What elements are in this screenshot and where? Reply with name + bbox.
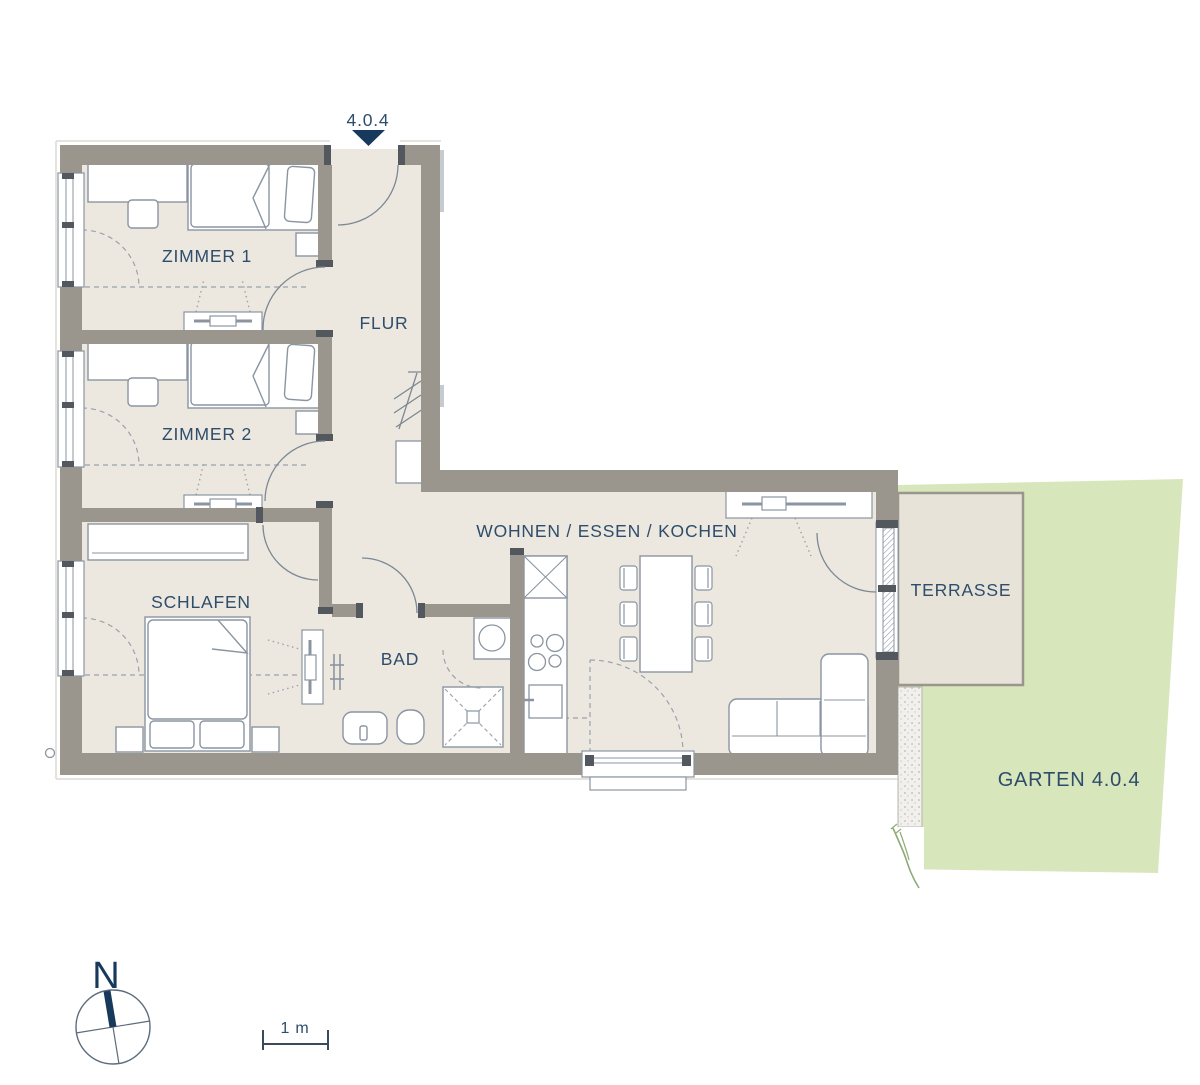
window-schlafen: [58, 561, 84, 676]
terrace-sliding-door: [876, 520, 898, 660]
flur-closet: [396, 441, 424, 483]
bad-toilet: [397, 710, 424, 744]
schlafen-tv-sideboard: [302, 630, 323, 704]
window-zimmer1: [58, 173, 84, 287]
kitchen-counter: [521, 556, 567, 755]
wall-flur-z1: [318, 165, 332, 266]
zimmer2-bed: [188, 339, 322, 408]
wall-living-top: [421, 470, 898, 492]
wall-flur-right: [421, 145, 440, 476]
schlafen-double-bed: [145, 617, 250, 751]
schlafen-label: SCHLAFEN: [151, 592, 251, 612]
kitchen-tall-cabinet: [524, 556, 567, 598]
downpipe-symbol: [46, 749, 55, 758]
scale-bar: 1 m: [263, 1020, 328, 1050]
zimmer2-label: ZIMMER 2: [162, 424, 252, 444]
compass-rose: N: [76, 955, 150, 1064]
french-window-living: [582, 751, 694, 790]
bad-washing-machine: [474, 618, 511, 659]
dining-table: [640, 556, 692, 672]
schlafen-wardrobe: [88, 524, 248, 560]
floorplan-page: 4.0.4 ZIMMER 1 ZIMMER 2 FLUR SCHLAFEN BA…: [0, 0, 1200, 1085]
gravel-strip: [898, 687, 924, 871]
schlafen-nightstand-left: [116, 727, 143, 752]
zimmer1-bed: [188, 161, 322, 230]
scale-bar-label: 1 m: [280, 1020, 309, 1037]
flur-label: FLUR: [360, 313, 409, 333]
terrasse-label: TERRASSE: [911, 580, 1012, 600]
bad-washbasin: [343, 712, 387, 744]
wall-z1-z2: [82, 330, 332, 344]
wall-z2-schlafen: [82, 508, 332, 522]
floorplan-drawing: 4.0.4 ZIMMER 1 ZIMMER 2 FLUR SCHLAFEN BA…: [0, 0, 1200, 1085]
bad-label: BAD: [381, 649, 419, 669]
entrance-arrow-icon: [352, 130, 385, 146]
wohnen-tv-sideboard: [726, 489, 872, 518]
zimmer1-label: ZIMMER 1: [162, 246, 252, 266]
schlafen-nightstand-right: [252, 727, 279, 752]
wall-top-left: [60, 145, 330, 165]
window-zimmer2: [58, 351, 84, 467]
compass-north-label: N: [92, 955, 119, 997]
garten-label: GARTEN 4.0.4: [998, 769, 1141, 791]
zimmer1-tv-sideboard: [184, 312, 262, 331]
wall-flur-z2: [318, 330, 332, 440]
wall-bad-top-right: [418, 604, 524, 617]
wohnen-label: WOHNEN / ESSEN / KOCHEN: [476, 521, 738, 541]
wall-kitchen: [510, 552, 524, 755]
entrance-unit-label: 4.0.4: [347, 110, 390, 130]
wall-bottom: [60, 753, 898, 775]
wall-schlafen-right: [319, 522, 332, 613]
